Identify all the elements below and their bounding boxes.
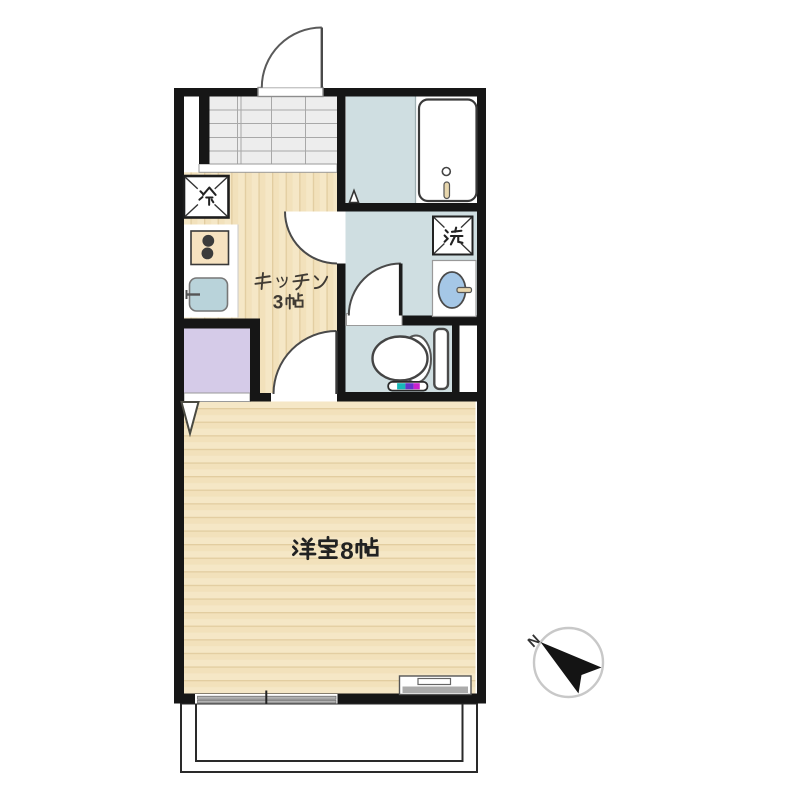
svg-text:3: 3: [273, 293, 284, 314]
svg-text:8: 8: [340, 538, 354, 565]
